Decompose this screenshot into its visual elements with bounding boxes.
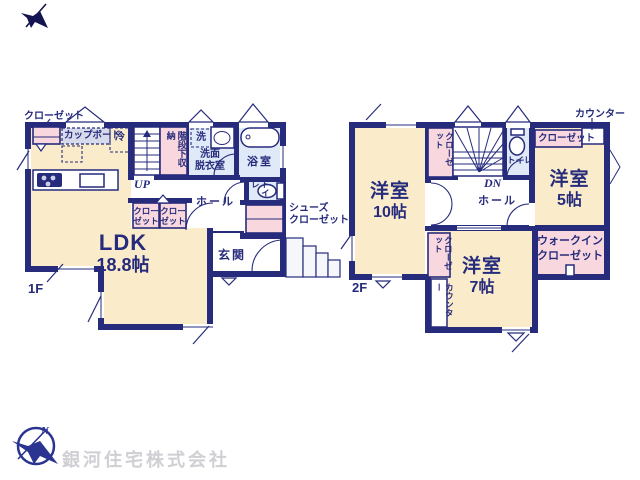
label-floor2: 2F bbox=[352, 280, 367, 296]
label-bath: 浴室 bbox=[247, 156, 273, 169]
north-compass-icon bbox=[21, 4, 48, 28]
closet-topleft-box bbox=[33, 127, 60, 144]
bathtub-icon bbox=[241, 128, 279, 147]
label-toilet-1f: トイレ bbox=[250, 180, 270, 202]
toilet-2f-icon bbox=[510, 129, 525, 155]
label-bedroom10-size: 10帖 bbox=[355, 203, 425, 222]
label-closet-stairs: クローゼット bbox=[434, 132, 454, 174]
label-entrance: 玄関 bbox=[218, 248, 246, 262]
label-bedroom5: 洋室 bbox=[535, 169, 604, 192]
label-wic: ウォークイン クローゼット bbox=[534, 234, 606, 264]
label-stair-storage: 階段下収納 bbox=[165, 131, 187, 175]
label-cupboard: カップボード bbox=[64, 130, 121, 141]
label-closet-bedroom5: クローゼット bbox=[538, 133, 595, 144]
label-fridge: 冷 bbox=[115, 132, 125, 144]
label-up: UP bbox=[134, 177, 150, 191]
label-hall-2f: ホール bbox=[478, 195, 517, 208]
label-bedroom5-size: 5帖 bbox=[535, 191, 604, 210]
label-counter-side: カウンター bbox=[434, 283, 454, 325]
bay-window bbox=[610, 150, 620, 184]
label-hall-1f: ホール bbox=[196, 196, 235, 209]
label-ldk-size: 18.8帖 bbox=[85, 255, 161, 277]
svg-text:N: N bbox=[40, 425, 50, 437]
kitchen-counter bbox=[33, 170, 118, 190]
label-closet-topleft: クローゼット bbox=[24, 111, 84, 123]
floorplan-page: { "colors":{ "wall_navy":"#262b7c","room… bbox=[0, 0, 640, 480]
label-washroom: 洗面 脱衣室 bbox=[187, 149, 233, 173]
company-name: 銀河住宅株式会社 bbox=[62, 446, 230, 472]
label-closet-b: クロー ゼット bbox=[160, 206, 186, 226]
label-closet-a: クロー ゼット bbox=[133, 206, 159, 226]
label-closet-bedroom7: クローゼット bbox=[433, 236, 453, 276]
wic-door-marker bbox=[566, 265, 574, 276]
stairs-2f bbox=[453, 127, 503, 176]
label-shoes-closet: シューズ クローゼット bbox=[289, 203, 349, 227]
stairs-1f bbox=[134, 127, 160, 175]
label-dn: DN bbox=[484, 176, 501, 190]
label-floor1: 1F bbox=[28, 281, 43, 297]
entrance-steps bbox=[286, 238, 340, 277]
label-ldk: LDK bbox=[85, 230, 161, 256]
company-logo: N bbox=[12, 425, 58, 464]
label-bedroom10: 洋室 bbox=[355, 181, 425, 204]
label-counter-top: カウンター bbox=[575, 109, 625, 121]
kitchen-sink-icon bbox=[80, 174, 104, 187]
label-washer: 洗 bbox=[196, 132, 206, 144]
label-toilet-2f: トイレ bbox=[507, 155, 533, 165]
